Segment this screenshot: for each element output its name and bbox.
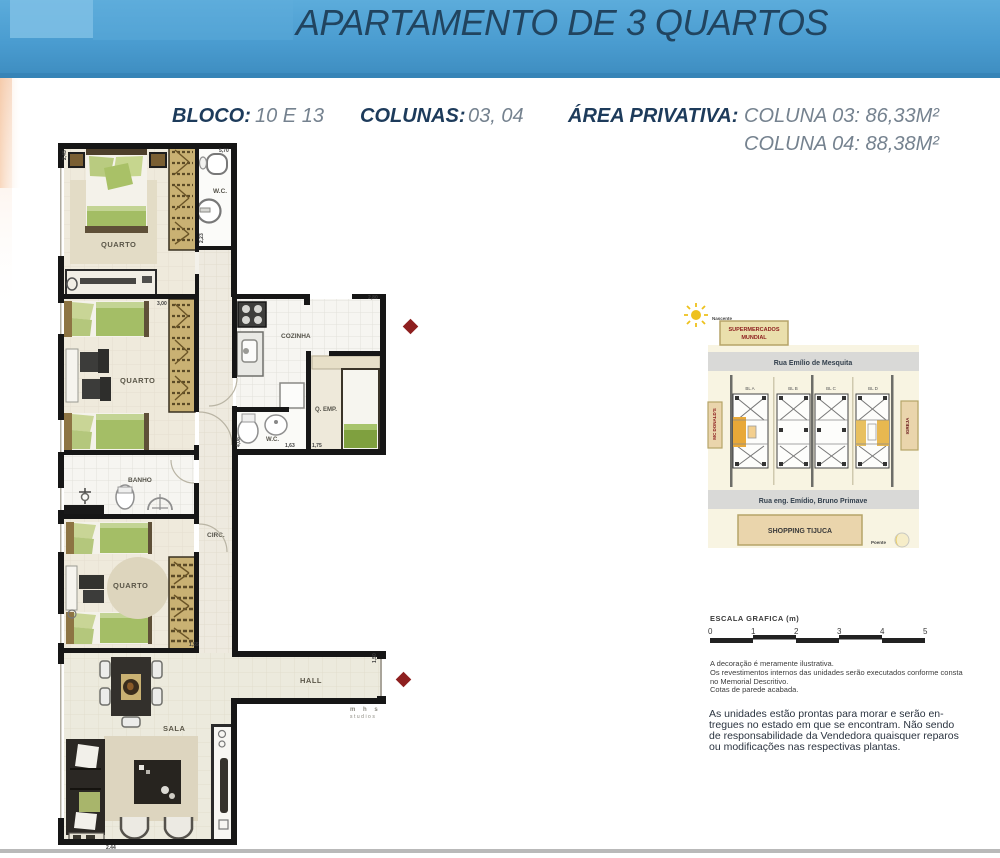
svg-text:SHOPPING TIJUCA: SHOPPING TIJUCA bbox=[768, 528, 832, 535]
svg-text:2,45: 2,45 bbox=[62, 150, 68, 160]
svg-text:W.C.: W.C. bbox=[213, 188, 227, 195]
svg-text:4,08: 4,08 bbox=[236, 437, 242, 447]
svg-text:BLOCO:: BLOCO: bbox=[172, 105, 251, 127]
svg-text:1: 1 bbox=[751, 627, 756, 636]
svg-text:COZINHA: COZINHA bbox=[281, 333, 311, 340]
svg-text:APARTAMENTO DE 3 QUARTOS: APARTAMENTO DE 3 QUARTOS bbox=[294, 2, 829, 43]
svg-text:4: 4 bbox=[880, 627, 885, 636]
svg-text:2,80: 2,80 bbox=[368, 295, 378, 301]
svg-text:1,75: 1,75 bbox=[312, 443, 322, 449]
svg-text:Cotas de parede acabada.: Cotas de parede acabada. bbox=[710, 685, 798, 694]
svg-text:1,50: 1,50 bbox=[372, 653, 378, 663]
svg-text:COLUNA 04: 88,38M²: COLUNA 04: 88,38M² bbox=[744, 133, 940, 155]
svg-text:studios: studios bbox=[350, 714, 376, 720]
svg-text:3,00: 3,00 bbox=[157, 301, 167, 307]
svg-text:Q. EMP.: Q. EMP. bbox=[315, 407, 337, 413]
svg-text:MC DONALD'S: MC DONALD'S bbox=[712, 408, 717, 440]
svg-text:Rua eng. Emídio, Bruno Primave: Rua eng. Emídio, Bruno Primave bbox=[759, 498, 868, 505]
svg-text:QUARTO: QUARTO bbox=[113, 581, 148, 590]
svg-text:Nascente: Nascente bbox=[712, 316, 733, 321]
svg-text:HALL: HALL bbox=[300, 676, 322, 685]
svg-text:COLUNAS:: COLUNAS: bbox=[360, 105, 466, 127]
svg-text:2: 2 bbox=[794, 627, 799, 636]
svg-text:SALA: SALA bbox=[163, 724, 186, 733]
svg-text:IGREJA: IGREJA bbox=[905, 417, 910, 435]
svg-text:MUNDIAL: MUNDIAL bbox=[741, 335, 767, 341]
svg-text:1,55: 1,55 bbox=[189, 642, 199, 648]
svg-text:10 E 13: 10 E 13 bbox=[255, 105, 324, 127]
svg-text:A decoração é meramente ilustr: A decoração é meramente ilustrativa. bbox=[710, 659, 834, 668]
svg-text:BL C: BL C bbox=[826, 386, 837, 391]
svg-text:BL B: BL B bbox=[788, 386, 798, 391]
svg-text:1,63: 1,63 bbox=[285, 443, 295, 449]
svg-text:Poente: Poente bbox=[871, 540, 887, 545]
svg-text:5: 5 bbox=[923, 627, 928, 636]
svg-text:BL D: BL D bbox=[868, 386, 879, 391]
svg-text:COLUNA 03: 86,33M²: COLUNA 03: 86,33M² bbox=[744, 105, 940, 127]
svg-text:SUPERMERCADOS: SUPERMERCADOS bbox=[728, 327, 779, 333]
svg-text:m h s: m h s bbox=[350, 707, 381, 713]
svg-text:Rua Emílio de Mesquita: Rua Emílio de Mesquita bbox=[774, 360, 853, 367]
svg-text:03, 04: 03, 04 bbox=[468, 105, 524, 127]
svg-text:W.C.: W.C. bbox=[266, 437, 279, 443]
svg-text:BANHO: BANHO bbox=[128, 477, 152, 484]
svg-text:ou modificações nas respectiva: ou modificações nas respectivas plantas. bbox=[709, 741, 900, 753]
svg-text:BL A: BL A bbox=[745, 386, 754, 391]
svg-text:Os revestimentos internos das: Os revestimentos internos das unidades s… bbox=[710, 668, 963, 677]
svg-text:ESCALA GRAFICA (m): ESCALA GRAFICA (m) bbox=[710, 614, 799, 623]
svg-text:ÁREA PRIVATIVA:: ÁREA PRIVATIVA: bbox=[567, 104, 738, 127]
svg-text:0: 0 bbox=[708, 627, 713, 636]
svg-text:3: 3 bbox=[837, 627, 842, 636]
svg-text:5,70: 5,70 bbox=[219, 148, 229, 154]
svg-text:QUARTO: QUARTO bbox=[120, 376, 155, 385]
svg-text:QUARTO: QUARTO bbox=[101, 240, 136, 249]
svg-text:2,23: 2,23 bbox=[199, 233, 205, 243]
